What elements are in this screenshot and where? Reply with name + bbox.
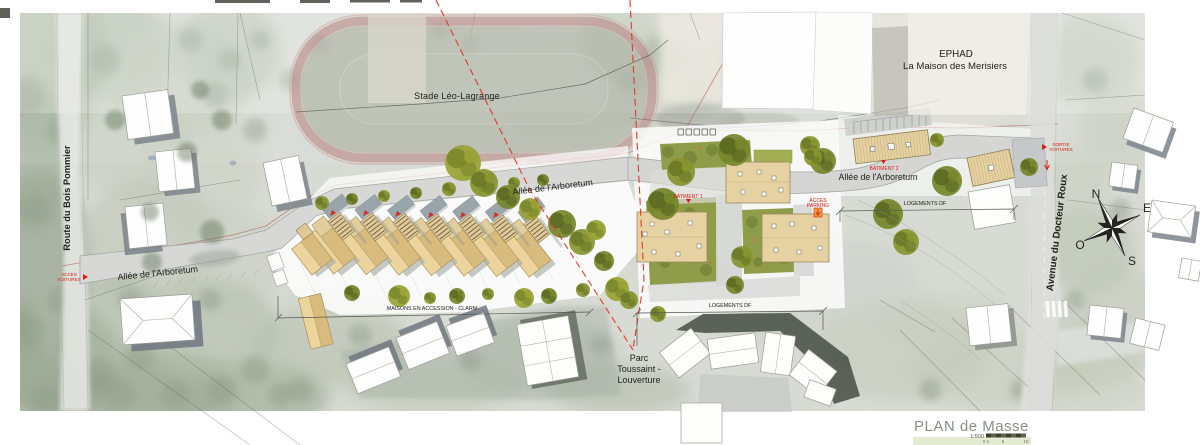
svg-text:S: S [1128,254,1136,268]
svg-text:N: N [1092,187,1101,201]
svg-text:Toussaint -: Toussaint - [617,364,661,374]
svg-text:0 1: 0 1 [983,439,990,444]
svg-text:Allée de l'Arboretum: Allée de l'Arboretum [839,172,918,182]
svg-text:Louverture: Louverture [617,375,660,385]
svg-text:EPHAD: EPHAD [939,49,973,60]
svg-text:LOGEMENTS DF: LOGEMENTS DF [904,201,947,207]
svg-text:LOGEMENTS DF: LOGEMENTS DF [709,303,752,309]
svg-text:Route du Bois Pommier: Route du Bois Pommier [62,145,72,251]
svg-text:E: E [1143,201,1151,215]
svg-text:10: 10 [1023,439,1029,444]
svg-text:La Maison des Merisiers: La Maison des Merisiers [903,61,1007,72]
svg-text:BATIMENT 2: BATIMENT 2 [870,166,899,172]
svg-text:Stade Léo-Lagrange: Stade Léo-Lagrange [414,91,500,101]
svg-text:O: O [1075,238,1084,252]
svg-text:VOITURES: VOITURES [1049,147,1072,152]
svg-text:VOITURES: VOITURES [57,277,80,282]
svg-text:PLAN de Masse: PLAN de Masse [914,418,1029,435]
svg-text:MAISONS EN ACCESSION - CLARM: MAISONS EN ACCESSION - CLARM [387,306,478,312]
svg-text:Parc: Parc [630,353,649,363]
